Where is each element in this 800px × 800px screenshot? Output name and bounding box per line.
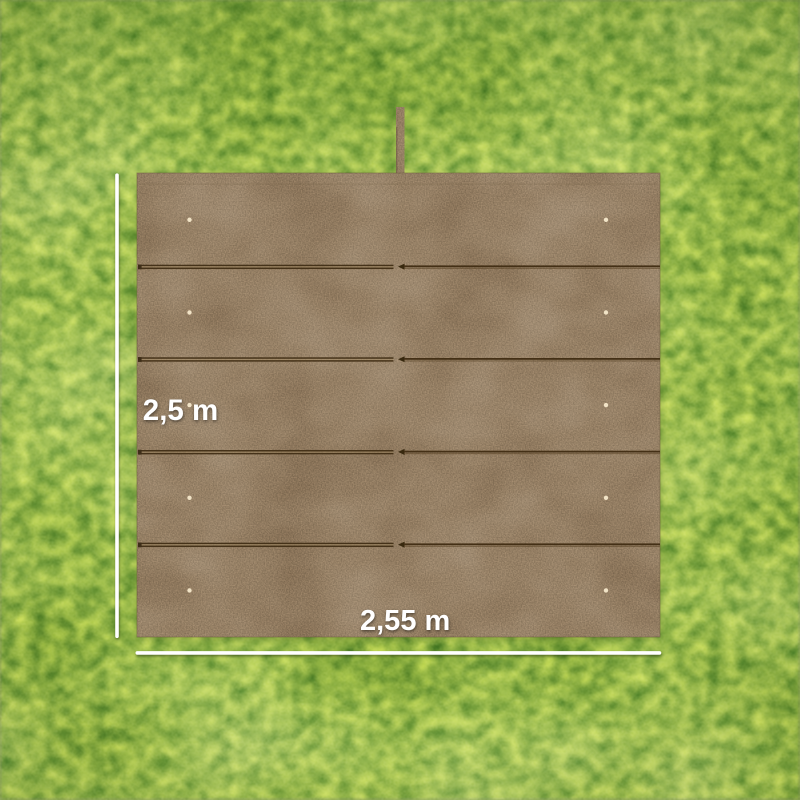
svg-text:2,55 m: 2,55 m <box>360 605 450 637</box>
svg-text:2,5 m: 2,5 m <box>143 394 218 427</box>
